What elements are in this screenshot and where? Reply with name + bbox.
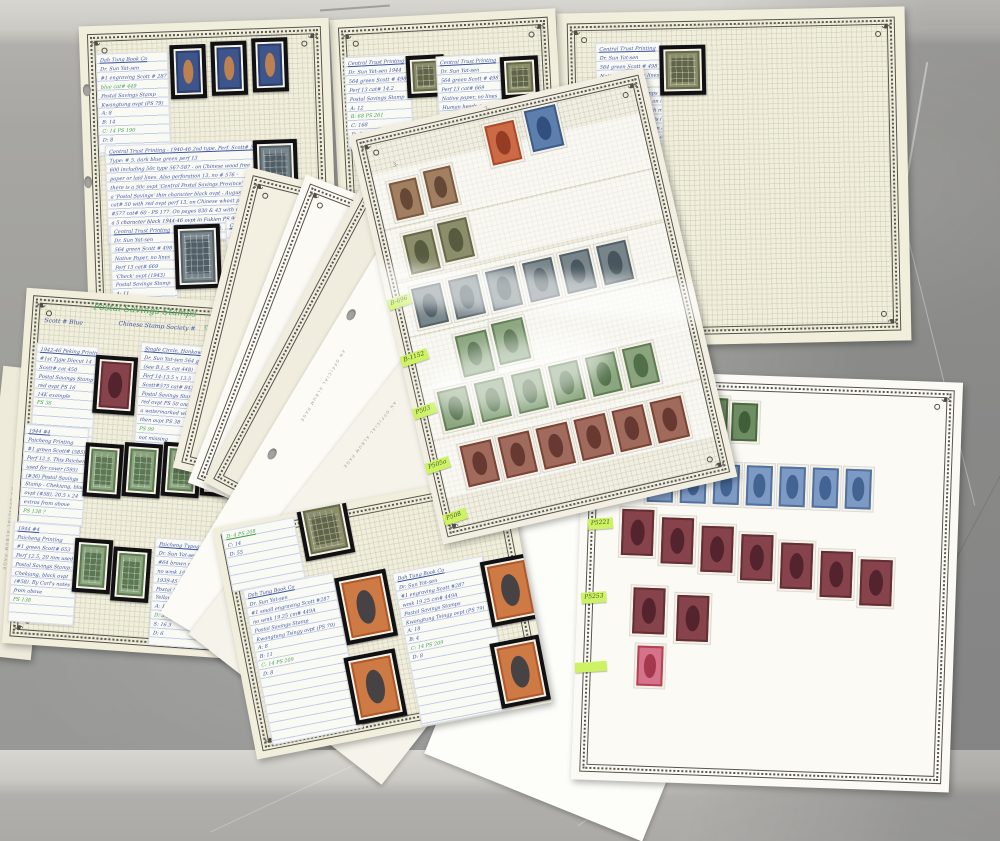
stamp [843, 467, 875, 512]
stamp [663, 49, 702, 92]
sub-caption-scott: Scott # Blue [44, 317, 83, 327]
corner-ornament [526, 19, 547, 40]
photo-of-stamp-album-pages: { "album": { "header": "Postal Savings S… [0, 0, 1000, 750]
stamp [173, 48, 203, 95]
stamp [674, 593, 712, 644]
stamp [817, 549, 855, 600]
corner-ornament [304, 186, 330, 212]
corner-ornament [617, 77, 641, 101]
stamp [494, 639, 546, 704]
stamp-mount [169, 44, 207, 99]
stamp [96, 359, 133, 411]
stamp [504, 59, 536, 95]
highlight-label [575, 661, 608, 673]
corner-ornament [932, 392, 953, 413]
punch-hole [266, 447, 279, 461]
corner-ornament [879, 309, 899, 329]
stamp [630, 585, 668, 636]
stamp-mount [174, 224, 222, 290]
stamp [76, 542, 109, 590]
stamp [300, 502, 350, 557]
pencil-mark: 3- [484, 105, 491, 113]
stamp [738, 532, 776, 583]
pencil-mark: 3- [392, 161, 399, 169]
stamp [777, 464, 809, 509]
stamp [87, 447, 120, 495]
stamp-mount [92, 355, 138, 416]
corner-ornament [340, 29, 361, 50]
note-card: Dah Tung Book CoDr. Sun Yat-sen#1 engrav… [96, 51, 172, 155]
stamp [255, 41, 285, 88]
stamp [178, 228, 218, 285]
note-card: 1944 #4Paicheng Printing#1 green Scott# … [7, 521, 80, 625]
stamp-mount [121, 442, 163, 499]
corner-ornament [569, 25, 589, 45]
highlight-label: P5221 [588, 517, 614, 529]
note-card: 1944 #4Paicheng Printing#1 green Scott# … [18, 424, 89, 526]
corner-ornament [704, 451, 728, 475]
stamp [126, 446, 159, 494]
punch-hole [345, 308, 358, 322]
punch-hole [83, 84, 91, 96]
stamp [810, 465, 842, 510]
stamp [634, 643, 666, 688]
highlight-label: P508 [442, 508, 468, 526]
stamp-mount [210, 41, 248, 96]
stamp-mount [72, 538, 114, 595]
stamp [698, 524, 736, 575]
punch-hole [84, 176, 92, 188]
corner-ornament [299, 28, 320, 49]
stamp [214, 45, 244, 92]
page-heading: Postal Savings Stamps [93, 302, 196, 319]
stamp-mount [110, 546, 152, 603]
sub-caption-society: Chinese Stamp Society # [118, 320, 195, 332]
stamp [857, 557, 895, 608]
stamp [744, 463, 776, 508]
corner-ornament [34, 297, 55, 318]
stamp-mount [659, 45, 706, 96]
stamp-mount [251, 37, 289, 92]
stamp [348, 653, 403, 720]
stamp [729, 401, 760, 444]
stamp [619, 507, 657, 558]
surface-scratch [320, 5, 390, 12]
corner-ornament [249, 178, 273, 202]
stamp [339, 573, 394, 640]
corner-ornament [873, 19, 893, 39]
stamp [778, 540, 816, 591]
corner-ornament [358, 137, 382, 161]
stamp [658, 515, 696, 566]
stamp-mount [82, 442, 124, 499]
highlight-label: P5253 [581, 591, 607, 603]
stamp [114, 551, 147, 599]
handwritten-line: PS 36 [36, 399, 91, 412]
